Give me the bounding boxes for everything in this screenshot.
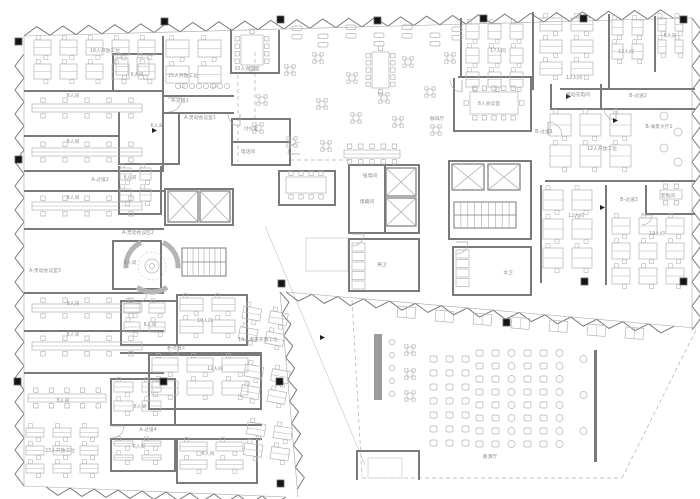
audience-chair — [476, 415, 483, 421]
hydrant-marker — [278, 280, 285, 287]
chair — [623, 234, 627, 238]
chair — [245, 381, 250, 386]
audience-chair — [476, 350, 483, 356]
wall-segment — [418, 238, 420, 292]
room-label: 8人会议室 — [478, 100, 500, 107]
chair — [265, 52, 269, 56]
audience-chair — [430, 356, 437, 362]
audience-chair — [540, 389, 547, 395]
chair — [122, 79, 126, 83]
chair — [677, 234, 681, 238]
chair — [129, 98, 133, 102]
room-label: B-过道1 — [535, 128, 553, 135]
audience-chair — [462, 440, 469, 446]
audience-chair — [492, 389, 499, 395]
chair — [638, 35, 642, 39]
chair — [80, 388, 84, 392]
chair — [235, 44, 239, 48]
room-label: 6人间 — [133, 443, 146, 450]
audience-chair — [492, 441, 499, 447]
chair — [511, 68, 515, 72]
chair — [381, 160, 385, 164]
chair — [185, 456, 189, 460]
wall-segment — [278, 170, 336, 172]
chair — [83, 424, 87, 428]
wall-segment — [448, 160, 450, 240]
chair — [203, 395, 207, 399]
chair — [107, 212, 111, 216]
chair — [197, 469, 201, 473]
chair — [615, 264, 619, 268]
chair — [117, 451, 121, 455]
chair — [235, 52, 239, 56]
chair — [41, 196, 45, 200]
room-label: 女卫 — [503, 269, 513, 276]
chair — [168, 372, 172, 376]
toilet-stall — [352, 253, 365, 261]
chair — [158, 332, 162, 336]
chair — [366, 68, 370, 72]
audience-chair — [446, 398, 453, 404]
chair — [91, 473, 95, 477]
wall-segment — [178, 112, 180, 165]
audience-chair — [492, 376, 499, 382]
chair — [299, 195, 303, 199]
chair — [88, 36, 92, 40]
wall-segment — [530, 78, 532, 132]
wall-segment — [645, 185, 647, 213]
chair — [133, 332, 137, 336]
wall-segment — [160, 240, 162, 290]
bar-stool — [389, 352, 394, 357]
wall-segment — [334, 170, 336, 206]
desk-divider — [271, 452, 289, 455]
direction-arrow — [320, 335, 325, 340]
audience-chair — [556, 415, 563, 422]
wall-segment — [452, 246, 532, 248]
audience-chair — [492, 402, 499, 408]
chair — [464, 101, 468, 105]
chair — [34, 388, 38, 392]
wall-segment — [348, 238, 420, 240]
wall-segment — [112, 240, 114, 290]
room-label: 8人间 — [67, 92, 80, 99]
audience-chair — [540, 415, 547, 421]
audience-chair — [446, 426, 453, 432]
chair — [121, 185, 125, 189]
wall-segment — [453, 78, 455, 132]
chair — [584, 75, 588, 79]
window-booth — [435, 310, 454, 323]
desk-cluster — [540, 14, 593, 80]
facade-zigzag-edge — [280, 292, 304, 489]
wall-segment — [448, 238, 532, 240]
chair — [64, 455, 68, 459]
wall-segment — [110, 440, 112, 472]
chair — [153, 411, 157, 415]
chair — [158, 313, 162, 317]
desk-divider — [274, 432, 292, 435]
room-label: 8人间 — [67, 300, 80, 307]
room-label: 4人间 — [124, 259, 137, 266]
audience-chair — [556, 402, 563, 409]
chair — [658, 36, 662, 40]
audience-chair — [508, 428, 515, 435]
chair — [495, 39, 499, 43]
wall-segment — [164, 188, 166, 226]
chair — [125, 446, 129, 450]
wall-segment — [289, 118, 291, 166]
lounge-sofa — [430, 33, 440, 38]
chair — [391, 53, 395, 57]
audience-chair — [556, 428, 563, 435]
chair — [544, 36, 548, 40]
chair — [381, 144, 385, 148]
audience-chair — [492, 428, 499, 434]
audience-chair — [508, 363, 515, 370]
wall-segment — [162, 112, 234, 114]
room-label: B-过道3 — [620, 196, 638, 203]
room-label: 移动充电间 — [566, 91, 590, 98]
cafe-counter — [374, 334, 382, 400]
chair — [366, 75, 370, 79]
room-label: 男卫 — [377, 262, 387, 268]
chair — [391, 61, 395, 65]
chair — [663, 201, 667, 205]
desk-cluster — [543, 186, 592, 273]
chair — [64, 473, 68, 477]
chair — [235, 37, 239, 41]
chair — [129, 142, 133, 146]
floor-plan-drawing: 16人开放工位6人间15人开放工位8人间A-过道1A-灵动会议室16人间8人间1… — [0, 0, 700, 499]
chair — [359, 160, 363, 164]
audience-chair — [508, 415, 515, 422]
chair — [584, 210, 588, 214]
bar-stool — [196, 83, 201, 88]
chair — [65, 404, 69, 408]
room-label: 16人开放工位 — [90, 47, 120, 54]
wall-segment — [348, 164, 350, 234]
chair — [593, 136, 597, 140]
window-booth — [587, 324, 606, 337]
audience-chair — [524, 363, 531, 369]
chair — [555, 268, 559, 272]
chair — [584, 31, 588, 35]
wall-segment — [110, 470, 176, 472]
desk-cluster — [612, 16, 643, 64]
room-label: B-过道2 — [629, 92, 647, 99]
bar-stool — [217, 83, 222, 88]
chair — [29, 460, 33, 464]
chair — [669, 264, 673, 268]
wall-segment — [176, 294, 178, 346]
chair — [273, 307, 278, 312]
chair — [44, 79, 48, 83]
wall-segment — [530, 246, 532, 296]
audience-chair — [492, 350, 499, 356]
chair — [553, 75, 557, 79]
chair — [56, 424, 60, 428]
chair — [563, 136, 567, 140]
chair — [122, 55, 126, 59]
room-label: 15人开放工位 — [168, 72, 198, 79]
chair — [85, 314, 89, 318]
audience-chair — [476, 363, 483, 369]
audience-chair — [430, 426, 437, 432]
chair — [64, 437, 68, 441]
window-booth — [549, 320, 568, 333]
lounge-sofa — [402, 34, 412, 39]
audience-chair — [446, 440, 453, 446]
toilet-stall — [456, 279, 469, 287]
facade-base-line — [24, 18, 692, 36]
chair — [613, 110, 617, 114]
chair — [546, 215, 550, 219]
wall-segment — [24, 135, 120, 137]
chair — [146, 201, 150, 205]
chair — [63, 212, 67, 216]
wall-segment — [176, 294, 248, 296]
chair — [29, 424, 33, 428]
audience-chair — [580, 392, 587, 399]
wall-segment — [231, 72, 279, 74]
meeting-table — [372, 52, 389, 88]
wall-segment — [453, 130, 532, 132]
audience-chair — [540, 376, 547, 382]
room-label: A-灵动会议区2 — [122, 229, 154, 236]
wall-segment — [532, 12, 534, 90]
audience-chair — [508, 376, 515, 383]
chair — [277, 422, 282, 427]
light-area-outline — [368, 458, 402, 478]
chair — [575, 186, 579, 190]
chair — [202, 62, 206, 66]
chair — [194, 333, 198, 337]
wall-segment — [560, 88, 695, 90]
fan-seating-center — [150, 264, 155, 269]
chair — [544, 14, 548, 18]
chair — [96, 404, 100, 408]
chair — [88, 60, 92, 64]
hydrant-marker — [680, 16, 687, 23]
chair — [34, 404, 38, 408]
wall-segment — [118, 112, 120, 165]
chair — [613, 40, 617, 44]
wall-segment — [256, 440, 258, 484]
chair — [80, 404, 84, 408]
chair — [85, 352, 89, 356]
chair — [226, 333, 230, 337]
audience-chair — [540, 363, 547, 369]
chair — [180, 57, 184, 61]
chair — [271, 386, 276, 391]
wall-segment — [24, 190, 164, 192]
wall-segment — [550, 84, 552, 110]
chair — [623, 136, 627, 140]
bar-stool — [389, 378, 394, 383]
lounge-sofa — [374, 42, 384, 47]
room-label: A-过道3 — [167, 344, 185, 351]
chair — [141, 185, 145, 189]
audience-chair — [430, 370, 437, 376]
chair — [184, 316, 188, 320]
chair — [392, 160, 396, 164]
chair — [91, 455, 95, 459]
wall-segment — [530, 160, 532, 240]
chair — [277, 403, 282, 408]
chair — [233, 469, 237, 473]
chair — [37, 437, 41, 441]
audience-chair — [556, 389, 563, 396]
chair — [37, 455, 41, 459]
facade-zigzag-edge — [692, 18, 700, 330]
booth-divider — [634, 328, 635, 339]
room-label: 强电间 — [363, 172, 378, 179]
chair — [125, 392, 129, 396]
audience-chair — [524, 376, 531, 382]
room-label: 17人间 — [490, 47, 506, 54]
room-label: 12人间 — [207, 365, 223, 372]
chair — [520, 101, 524, 105]
chair — [140, 60, 144, 64]
chair — [85, 142, 89, 146]
chair — [216, 316, 220, 320]
chair — [366, 53, 370, 57]
audience-chair — [462, 398, 469, 404]
chair — [492, 116, 496, 120]
room-label: 储藏间 — [360, 198, 375, 205]
chair — [233, 451, 237, 455]
room-label: 6人间 — [131, 71, 144, 78]
booth-divider — [520, 318, 521, 329]
facade-zigzag-edge — [15, 54, 24, 486]
room-label: 23人开放工位 — [45, 447, 75, 454]
chair — [85, 212, 89, 216]
chair — [49, 388, 53, 392]
audience-chair — [580, 428, 587, 435]
chair — [145, 451, 149, 455]
facade-zigzag-edge — [286, 292, 675, 333]
chair — [107, 314, 111, 318]
chair — [62, 60, 66, 64]
wall-segment — [278, 30, 280, 74]
chair — [392, 144, 396, 148]
chair — [679, 53, 683, 57]
hydrant-marker — [581, 278, 588, 285]
chair — [254, 378, 259, 383]
room-label: 讨论室 — [244, 125, 259, 132]
wall-segment — [348, 238, 350, 292]
room-label: 6人间 — [124, 174, 137, 181]
chair — [370, 160, 374, 164]
bar-stool — [210, 83, 215, 88]
chair — [107, 352, 111, 356]
wall-segment — [120, 352, 262, 354]
bar-stool — [203, 83, 208, 88]
audience-chair — [508, 350, 515, 357]
wall-segment — [148, 354, 262, 356]
audience-chair — [524, 428, 531, 434]
room-label: 10人间 — [197, 317, 213, 324]
wall-segment — [348, 290, 420, 292]
door-arc — [642, 215, 652, 225]
chair — [192, 377, 196, 381]
lounge-sofa — [346, 34, 356, 39]
wall-segment — [278, 170, 280, 206]
chair — [63, 114, 67, 118]
chair — [107, 196, 111, 200]
audience-chair — [540, 441, 547, 447]
chair — [197, 451, 201, 455]
desk-cluster — [166, 36, 221, 88]
hydrant-marker — [277, 16, 284, 23]
chair — [583, 141, 587, 145]
audience-chair — [462, 384, 469, 390]
room-label: 6人间 — [134, 403, 147, 410]
chair — [501, 86, 505, 90]
chair — [593, 167, 597, 171]
audience-chair — [524, 350, 531, 356]
room-label: 6人间 — [144, 321, 157, 328]
wall-segment — [458, 76, 534, 78]
chair — [125, 460, 129, 464]
wall-segment — [24, 228, 164, 230]
room-label: 12人开放工位 — [587, 145, 617, 152]
chair — [129, 336, 133, 340]
hydrant-marker — [277, 480, 284, 487]
chair — [623, 284, 627, 288]
room-label: 8人间 — [57, 397, 70, 404]
chair — [153, 460, 157, 464]
hydrant-marker — [14, 378, 21, 385]
wall-segment — [164, 188, 234, 190]
fan-seating-table — [145, 259, 159, 273]
chair — [226, 311, 230, 315]
chair — [107, 98, 111, 102]
room-label: 8人间 — [664, 32, 677, 39]
chair — [283, 440, 288, 445]
hydrant-marker — [580, 15, 587, 22]
chair — [280, 460, 285, 465]
audience-chair — [492, 415, 499, 421]
desk-cluster — [550, 110, 631, 172]
desk-divider — [243, 312, 261, 315]
chair — [63, 352, 67, 356]
lounge-seat — [660, 112, 668, 120]
room-label: A-灵动会议室3 — [29, 267, 61, 274]
room-label: B-海景大厅2 — [645, 123, 672, 130]
chair — [170, 36, 174, 40]
desk-divider — [239, 333, 257, 336]
chair — [83, 460, 87, 464]
chair — [41, 352, 45, 356]
desk-cluster — [120, 164, 151, 206]
wall-segment — [260, 354, 262, 410]
chair — [517, 87, 521, 91]
chair — [623, 259, 627, 263]
chair — [575, 58, 579, 62]
lounge-sofa — [318, 43, 328, 48]
desk-cluster — [114, 437, 161, 465]
chair — [107, 336, 111, 340]
chair — [674, 184, 678, 188]
room-label: 12人间 — [618, 48, 634, 55]
audience-chair — [446, 356, 453, 362]
wall-segment — [24, 330, 164, 332]
chair — [675, 14, 679, 18]
bar-stool — [389, 365, 394, 370]
chair — [265, 44, 269, 48]
